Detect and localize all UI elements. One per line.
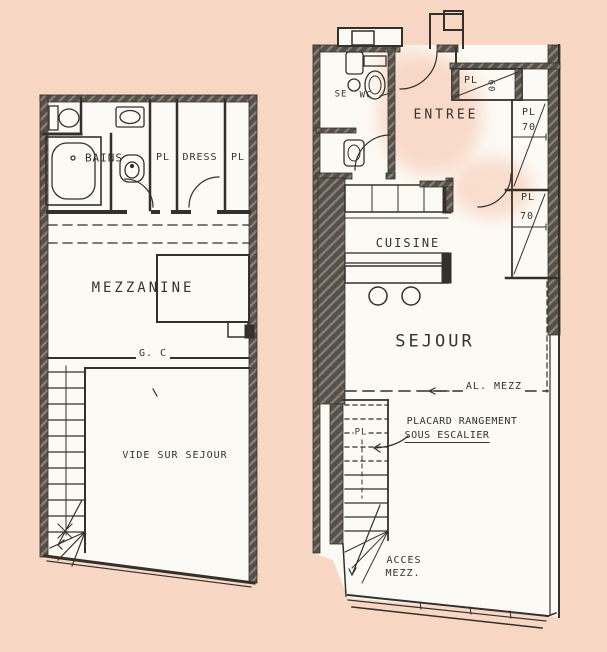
label-al-mezz: AL. MEZZ	[463, 382, 525, 392]
label-mezzanine: MEZZANINE	[92, 281, 195, 295]
label-vide-sur-sejour: VIDE SUR SEJOUR	[122, 451, 227, 461]
label-acces-mezz: MEZZ.	[385, 569, 420, 579]
floor-plan-scan: BAINS PL DRESS PL MEZZANINE G. C VIDE SU…	[0, 0, 607, 652]
label-se: SE	[335, 91, 348, 100]
label-pl-entree-dim: 60	[486, 80, 495, 93]
label-entree: ENTREE	[414, 109, 479, 122]
label-pl-right-1-dim: 70	[522, 123, 536, 133]
label-pl-top-2: PL	[231, 153, 245, 163]
label-dress: DRESS	[182, 153, 217, 163]
label-pl-right-1: PL	[522, 108, 536, 118]
floor-plan-linework	[0, 0, 607, 652]
label-sous-escalier: SOUS ESCALIER	[405, 431, 490, 443]
label-placard-rangement: PLACARD RANGEMENT	[407, 417, 518, 427]
left-floorplan	[40, 95, 257, 587]
label-cuisine: CUISINE	[373, 237, 444, 249]
right-floorplan	[313, 11, 560, 628]
label-wc: WC	[360, 92, 373, 101]
label-sejour: SEJOUR	[395, 334, 474, 351]
label-pl-right-2: PL	[521, 193, 535, 203]
label-acces: ACCES	[386, 556, 421, 566]
label-pl-entree: PL	[464, 76, 478, 86]
label-pl-stairs: PL	[354, 429, 369, 438]
label-pl-right-2-dim: 70	[520, 212, 534, 222]
label-pl-top-1: PL	[156, 153, 170, 163]
label-garde-corps: G. C	[136, 349, 170, 359]
label-bains: BAINS	[85, 153, 123, 164]
